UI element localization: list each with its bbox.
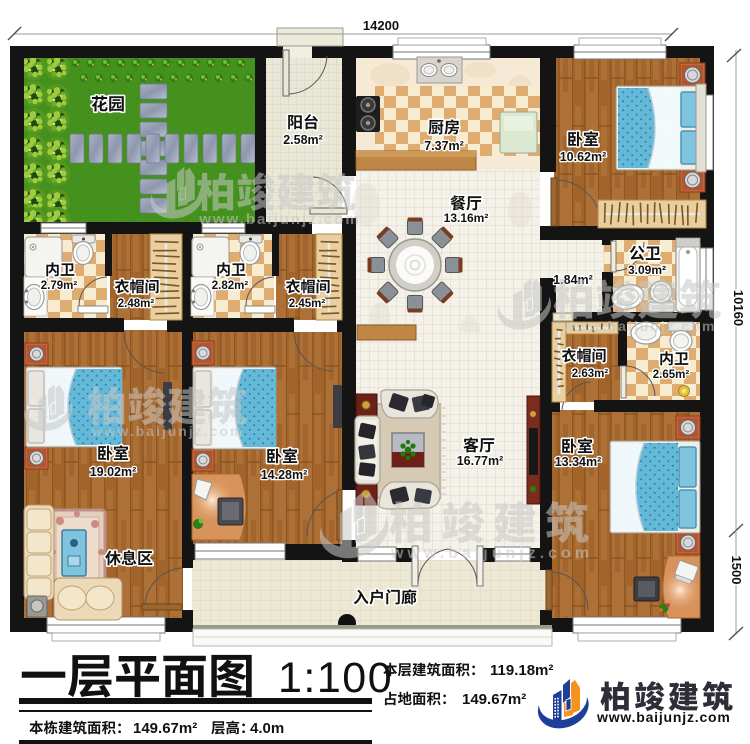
svg-text:3.09m²: 3.09m²	[628, 263, 666, 277]
svg-text:13.16m²: 13.16m²	[444, 211, 489, 225]
svg-text:7.37m²: 7.37m²	[424, 139, 464, 153]
svg-text:www.baijunjz.com: www.baijunjz.com	[198, 211, 360, 228]
svg-text:14.28m²: 14.28m²	[261, 468, 308, 482]
svg-text:149.67m²: 149.67m²	[462, 691, 526, 708]
svg-text:1:100: 1:100	[278, 654, 393, 702]
svg-text:1.84m²: 1.84m²	[553, 273, 593, 287]
svg-text:16.77m²: 16.77m²	[457, 454, 504, 468]
svg-text:19.02m²: 19.02m²	[90, 465, 137, 479]
svg-text:13.34m²: 13.34m²	[555, 455, 602, 469]
svg-text:4.0m: 4.0m	[250, 720, 284, 737]
svg-text:2.63m²: 2.63m²	[572, 368, 609, 380]
svg-text:10160: 10160	[731, 290, 746, 326]
svg-text:2.58m²: 2.58m²	[283, 133, 323, 147]
svg-text:1500: 1500	[729, 556, 744, 585]
svg-text:149.67m²: 149.67m²	[133, 720, 197, 737]
svg-text:www.baijunjz.com: www.baijunjz.com	[563, 318, 717, 334]
svg-text:10.62m²: 10.62m²	[560, 150, 607, 164]
svg-text:2.79m²: 2.79m²	[41, 280, 78, 292]
svg-text:2.45m²: 2.45m²	[289, 298, 326, 310]
svg-text:119.18m²: 119.18m²	[490, 662, 553, 679]
svg-text:2.65m²: 2.65m²	[653, 369, 690, 381]
svg-text:2.82m²: 2.82m²	[212, 280, 249, 292]
svg-text:www.baijunjz.com: www.baijunjz.com	[390, 545, 593, 562]
svg-text:2.48m²: 2.48m²	[118, 298, 155, 310]
svg-text:www.baijunjz.com: www.baijunjz.com	[596, 709, 731, 725]
svg-text:www.baijunjz.com: www.baijunjz.com	[91, 423, 245, 439]
svg-text:14200: 14200	[363, 18, 399, 33]
